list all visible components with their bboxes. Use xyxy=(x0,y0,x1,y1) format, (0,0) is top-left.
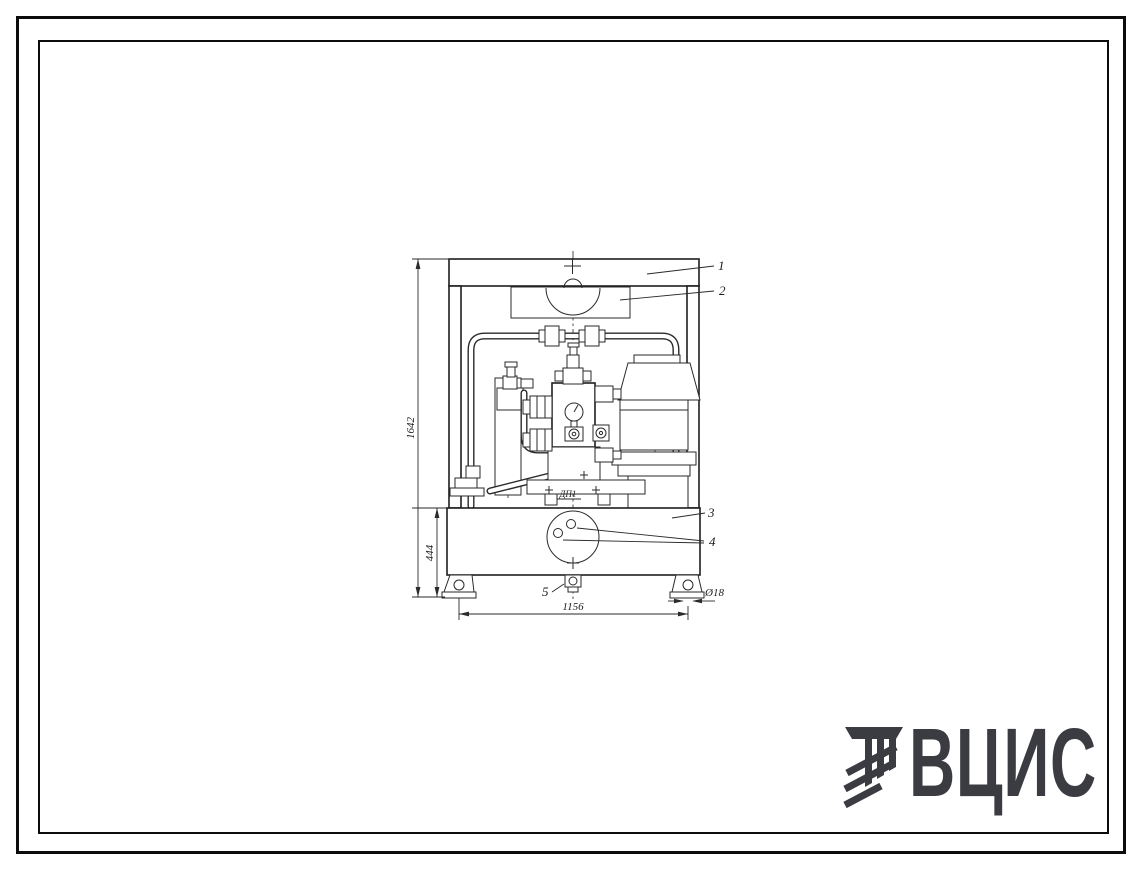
drawing-sheet: ДП1 xyxy=(0,0,1139,869)
oil-tank xyxy=(442,508,704,598)
dimension-tank-height: 444 xyxy=(424,544,436,561)
callout-1: 1 xyxy=(718,258,725,273)
callout-4: 4 xyxy=(709,534,716,549)
dimension-overall-height: 1642 xyxy=(405,417,417,440)
dimension-base-width: 1156 xyxy=(562,601,584,613)
vcis-logo: ВЦИС xyxy=(843,717,1139,812)
vcis-emblem-icon xyxy=(843,721,905,811)
callout-2: 2 xyxy=(719,283,726,298)
component-label: ДП1 xyxy=(559,489,577,499)
valve-assembly: ДП1 xyxy=(450,343,645,505)
callout-3: 3 xyxy=(707,505,715,520)
dimension-hole-diameter: Ø18 xyxy=(704,587,724,599)
vcis-logo-text: ВЦИС xyxy=(909,717,1097,809)
technical-drawing: ДП1 xyxy=(395,245,747,630)
callout-5: 5 xyxy=(542,584,549,599)
